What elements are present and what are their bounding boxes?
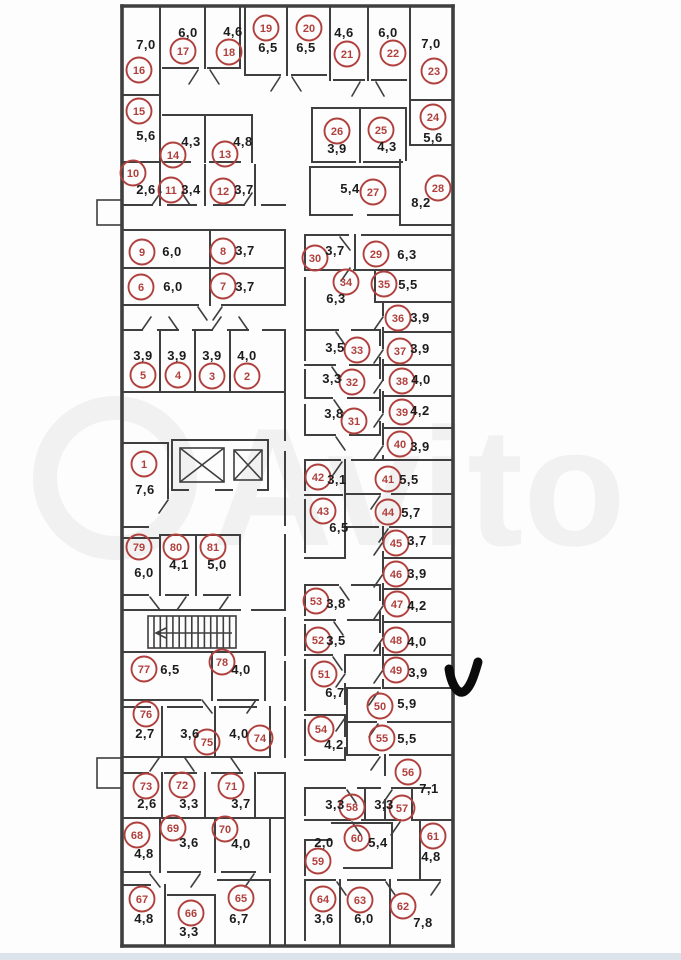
unit-marker-35: 355,5 [372,272,418,297]
unit-area-label: 7,0 [421,36,441,51]
unit-marker-73: 732,6 [134,774,159,812]
unit-number: 2 [244,371,250,383]
door-swing [219,597,228,610]
unit-marker-57: 573,3 [374,796,414,821]
floor-plan-svg: Avito 17,624,033,943,953,966,073,783,796… [0,0,681,960]
unit-number: 60 [351,833,363,845]
unit-area-label: 6,0 [163,279,183,294]
unit-area-label: 6,0 [134,565,154,580]
unit-marker-24: 245,6 [421,105,446,146]
unit-number: 54 [315,724,328,736]
door-swing [198,307,207,320]
unit-area-label: 3,3 [179,924,199,939]
unit-marker-32: 323,3 [322,370,364,395]
unit-marker-68: 684,8 [125,823,154,862]
unit-number: 18 [223,47,235,59]
unit-number: 41 [382,474,394,486]
unit-number: 20 [303,23,315,35]
door-swing [150,758,159,771]
unit-marker-17: 176,0 [171,25,198,64]
unit-number: 71 [225,781,237,793]
unit-area-label: 3,9 [410,310,430,325]
unit-marker-28: 288,2 [411,176,450,211]
unit-number: 22 [387,48,399,60]
unit-number: 15 [133,106,145,118]
unit-number: 39 [396,407,408,419]
unit-marker-34: 346,3 [326,270,358,307]
unit-number: 11 [165,185,177,197]
unit-marker-70: 704,0 [213,817,251,852]
unit-marker-63: 636,0 [348,888,374,927]
unit-number: 67 [136,894,148,906]
unit-area-label: 6,3 [397,247,417,262]
unit-marker-48: 484,0 [384,628,427,653]
unit-area-label: 5,4 [340,181,360,196]
unit-number: 34 [340,277,353,289]
unit-area-label: 3,9 [167,348,187,363]
watermark-ring [45,408,185,548]
unit-number: 79 [133,542,145,554]
unit-area-label: 4,2 [410,403,430,418]
unit-area-label: 2,0 [314,835,334,850]
unit-number: 77 [138,664,150,676]
unit-number: 28 [432,183,444,195]
unit-area-label: 3,9 [407,566,427,581]
unit-number: 58 [346,802,358,814]
unit-number: 4 [175,370,182,382]
unit-area-label: 3,9 [327,141,347,156]
unit-area-label: 4,0 [411,372,431,387]
unit-area-label: 6,5 [258,40,278,55]
unit-marker-66: 663,3 [179,901,204,940]
unit-number: 33 [351,345,363,357]
unit-area-label: 4,2 [407,598,427,613]
unit-marker-56: 567,1 [396,760,439,797]
unit-area-label: 3,7 [231,796,251,811]
unit-area-label: 4,1 [169,557,189,572]
unit-marker-19: 196,5 [254,16,279,56]
unit-number: 44 [382,507,395,519]
unit-marker-61: 614,8 [421,824,446,865]
unit-number: 45 [390,538,402,550]
door-swing [374,350,383,363]
unit-number: 14 [167,150,180,162]
unit-area-label: 6,5 [296,40,316,55]
unit-area-label: 4,3 [377,139,397,154]
unit-marker-2: 24,0 [235,348,260,389]
unit-area-label: 5,6 [136,128,156,143]
unit-number: 66 [185,908,197,920]
unit-number: 75 [201,737,213,749]
unit-area-label: 6,0 [354,911,374,926]
unit-number: 1 [141,459,147,471]
unit-marker-5: 53,9 [131,348,156,388]
unit-marker-36: 363,9 [386,306,430,331]
door-swing [150,874,160,887]
unit-area-label: 3,8 [326,596,346,611]
unit-number: 51 [318,669,330,681]
unit-number: 47 [391,599,403,611]
unit-area-label: 3,7 [407,533,427,548]
unit-area-label: 3,3 [325,797,345,812]
unit-number: 46 [390,569,402,581]
unit-number: 81 [207,542,219,554]
unit-marker-8: 83,7 [211,239,255,264]
unit-marker-53: 533,8 [304,589,346,614]
unit-marker-58: 583,3 [325,795,364,820]
unit-area-label: 6,7 [229,911,249,926]
unit-marker-27: 275,4 [340,180,385,205]
unit-area-label: 4,8 [421,849,441,864]
unit-number: 13 [219,149,231,161]
watermark-text: Avito [212,393,626,581]
bottom-edge-strip [0,953,681,960]
door-swing [374,606,383,619]
unit-area-label: 5,5 [399,472,419,487]
unit-number: 32 [346,377,358,389]
unit-area-label: 5,9 [397,696,417,711]
unit-number: 36 [392,313,404,325]
unit-area-label: 6,0 [178,25,198,40]
door-swing [374,638,383,651]
unit-area-label: 4,0 [231,662,251,677]
unit-area-label: 3,8 [324,406,344,421]
unit-number: 80 [170,542,182,554]
unit-area-label: 4,0 [237,348,257,363]
unit-area-label: 4,0 [231,836,251,851]
unit-area-label: 7,0 [136,37,156,52]
unit-area-label: 5,0 [207,557,227,572]
unit-marker-10: 102,6 [121,161,156,198]
door-swing [271,77,280,91]
unit-number: 56 [402,767,414,779]
unit-number: 53 [310,596,322,608]
unit-number: 38 [396,376,408,388]
unit-marker-4: 43,9 [166,348,191,388]
unit-area-label: 3,7 [235,279,255,294]
unit-area-label: 7,6 [135,482,155,497]
unit-marker-7: 73,7 [211,274,255,299]
unit-area-label: 4,6 [334,25,354,40]
unit-marker-25: 254,3 [369,118,397,155]
unit-number: 40 [394,439,406,451]
unit-number: 25 [375,125,387,137]
unit-number: 76 [140,709,152,721]
unit-area-label: 3,5 [325,340,345,355]
door-swing [189,70,198,84]
unit-area-label: 6,0 [378,25,398,40]
unit-number: 37 [394,346,406,358]
unit-area-label: 6,5 [160,662,180,677]
unit-marker-1: 17,6 [132,452,157,498]
unit-area-label: 4,8 [233,134,253,149]
unit-marker-16: 167,0 [127,37,156,83]
unit-marker-38: 384,0 [390,369,431,394]
unit-marker-64: 643,6 [311,887,336,927]
unit-marker-30: 303,7 [303,243,345,271]
unit-number: 12 [217,186,229,198]
unit-marker-54: 544,2 [309,717,344,753]
unit-number: 68 [131,830,143,842]
unit-marker-60: 605,4 [345,826,389,851]
unit-marker-72: 723,3 [170,773,199,812]
unit-area-label: 3,9 [202,348,222,363]
unit-area-label: 2,6 [137,796,157,811]
door-swing [150,597,160,610]
door-swing [169,317,178,330]
unit-number: 65 [235,893,247,905]
unit-number: 64 [317,894,330,906]
door-swing [352,82,360,96]
unit-marker-15: 155,6 [127,99,156,144]
unit-area-label: 7,1 [419,781,439,796]
unit-number: 50 [374,701,386,713]
unit-marker-49: 493,9 [384,658,428,683]
unit-number: 24 [427,112,440,124]
door-swing [374,380,383,393]
unit-area-label: 3,9 [410,341,430,356]
unit-number: 23 [428,66,440,78]
door-swing [142,317,151,330]
unit-number: 8 [220,246,226,258]
unit-number: 31 [348,416,360,428]
unit-area-label: 5,7 [401,505,421,520]
unit-number: 30 [309,253,321,265]
door-swing [374,317,383,330]
unit-area-label: 5,4 [368,835,388,850]
unit-number: 62 [397,901,409,913]
door-swing [210,70,219,84]
unit-marker-55: 555,5 [370,726,417,751]
unit-marker-26: 263,9 [325,119,350,157]
unit-area-label: 4,0 [407,634,427,649]
unit-area-label: 5,6 [423,130,443,145]
unit-number: 74 [254,733,267,745]
unit-area-label: 3,4 [181,182,201,197]
unit-area-label: 3,7 [234,182,254,197]
unit-area-label: 3,6 [314,911,334,926]
unit-marker-23: 237,0 [421,36,446,84]
unit-marker-77: 776,5 [132,657,180,682]
unit-number: 5 [140,370,146,382]
unit-area-label: 4,6 [223,24,243,39]
wall-bays [97,200,122,788]
unit-number: 57 [396,803,408,815]
unit-marker-29: 296,3 [364,242,417,267]
unit-area-label: 6,0 [162,244,182,259]
unit-number: 9 [139,247,145,259]
unit-number: 6 [138,282,144,294]
unit-area-label: 2,6 [136,182,156,197]
left-bay-lower [97,758,122,788]
unit-number: 27 [367,187,379,199]
unit-number: 61 [427,831,439,843]
unit-number: 70 [219,824,231,836]
unit-marker-11: 113,4 [159,178,202,203]
unit-number: 29 [370,249,382,261]
unit-area-label: 3,7 [325,243,345,258]
unit-number: 49 [390,665,402,677]
unit-marker-21: 214,6 [334,25,359,67]
unit-number: 63 [354,895,366,907]
door-swing [292,77,301,91]
unit-marker-37: 373,9 [388,339,430,364]
unit-marker-33: 333,5 [325,338,369,363]
unit-area-label: 3,1 [327,472,347,487]
unit-number: 73 [140,781,152,793]
unit-area-label: 3,6 [180,726,200,741]
unit-marker-75: 753,6 [180,726,219,755]
unit-number: 16 [133,65,145,77]
door-swing [336,718,345,731]
unit-area-label: 6,3 [326,291,346,306]
unit-area-label: 6,7 [325,685,345,700]
unit-marker-9: 96,0 [130,240,182,265]
door-swing [239,317,248,330]
door-swing [185,758,194,771]
floor-plan-page: Avito 17,624,033,943,953,966,073,783,796… [0,0,681,960]
unit-number: 42 [312,472,324,484]
unit-number: 35 [378,279,390,291]
unit-area-label: 3,3 [374,797,394,812]
unit-marker-71: 713,7 [219,774,251,812]
unit-number: 21 [341,49,353,61]
unit-number: 17 [177,46,189,58]
unit-area-label: 2,7 [135,726,155,741]
unit-number: 55 [376,733,388,745]
unit-marker-20: 206,5 [296,16,321,56]
unit-number: 59 [312,856,324,868]
unit-area-label: 4,0 [229,726,249,741]
unit-number: 26 [331,126,343,138]
unit-marker-74: 744,0 [229,726,272,751]
unit-area-label: 6,5 [329,520,349,535]
door-swing [371,757,380,770]
unit-number: 7 [220,281,226,293]
unit-marker-78: 784,0 [210,650,251,678]
unit-area-label: 3,9 [410,439,430,454]
door-swing [376,82,384,96]
unit-area-label: 5,5 [398,277,418,292]
unit-number: 19 [260,23,272,35]
door-swing [337,882,346,895]
unit-number: 10 [127,168,139,180]
unit-number: 52 [312,635,324,647]
unit-marker-65: 656,7 [229,886,254,927]
unit-number: 72 [176,780,188,792]
unit-number: 78 [216,657,228,669]
unit-number: 48 [390,635,402,647]
unit-area-label: 3,3 [179,796,199,811]
unit-area-label: 4,3 [181,134,201,149]
unit-area-label: 3,3 [322,371,342,386]
door-swing [431,882,440,895]
door-swing [231,758,240,771]
door-swing [202,700,212,713]
unit-marker-6: 66,0 [129,275,183,300]
left-bay-upper [97,200,122,225]
unit-area-label: 3,6 [179,835,199,850]
unit-number: 69 [167,823,179,835]
unit-area-label: 4,8 [134,846,154,861]
unit-area-label: 3,9 [133,348,153,363]
unit-marker-62: 627,8 [391,894,433,931]
unit-number: 3 [209,371,215,383]
unit-area-label: 5,5 [397,731,417,746]
unit-area-label: 4,2 [324,737,344,752]
unit-marker-22: 226,0 [378,25,405,66]
unit-area-label: 4,8 [134,911,154,926]
unit-number: 43 [317,506,329,518]
door-swing [177,597,186,610]
door-swing [374,670,383,683]
unit-area-label: 3,7 [235,243,255,258]
staircase [148,616,236,648]
unit-marker-3: 33,9 [200,348,225,389]
unit-marker-18: 184,6 [217,24,243,65]
unit-area-label: 3,9 [408,665,428,680]
unit-marker-67: 674,8 [130,887,155,927]
unit-area-label: 7,8 [413,915,433,930]
unit-marker-47: 474,2 [385,592,427,617]
unit-area-label: 8,2 [411,195,431,210]
door-swing [191,874,200,887]
unit-marker-69: 693,6 [161,816,199,851]
unit-area-label: 3,5 [326,633,346,648]
